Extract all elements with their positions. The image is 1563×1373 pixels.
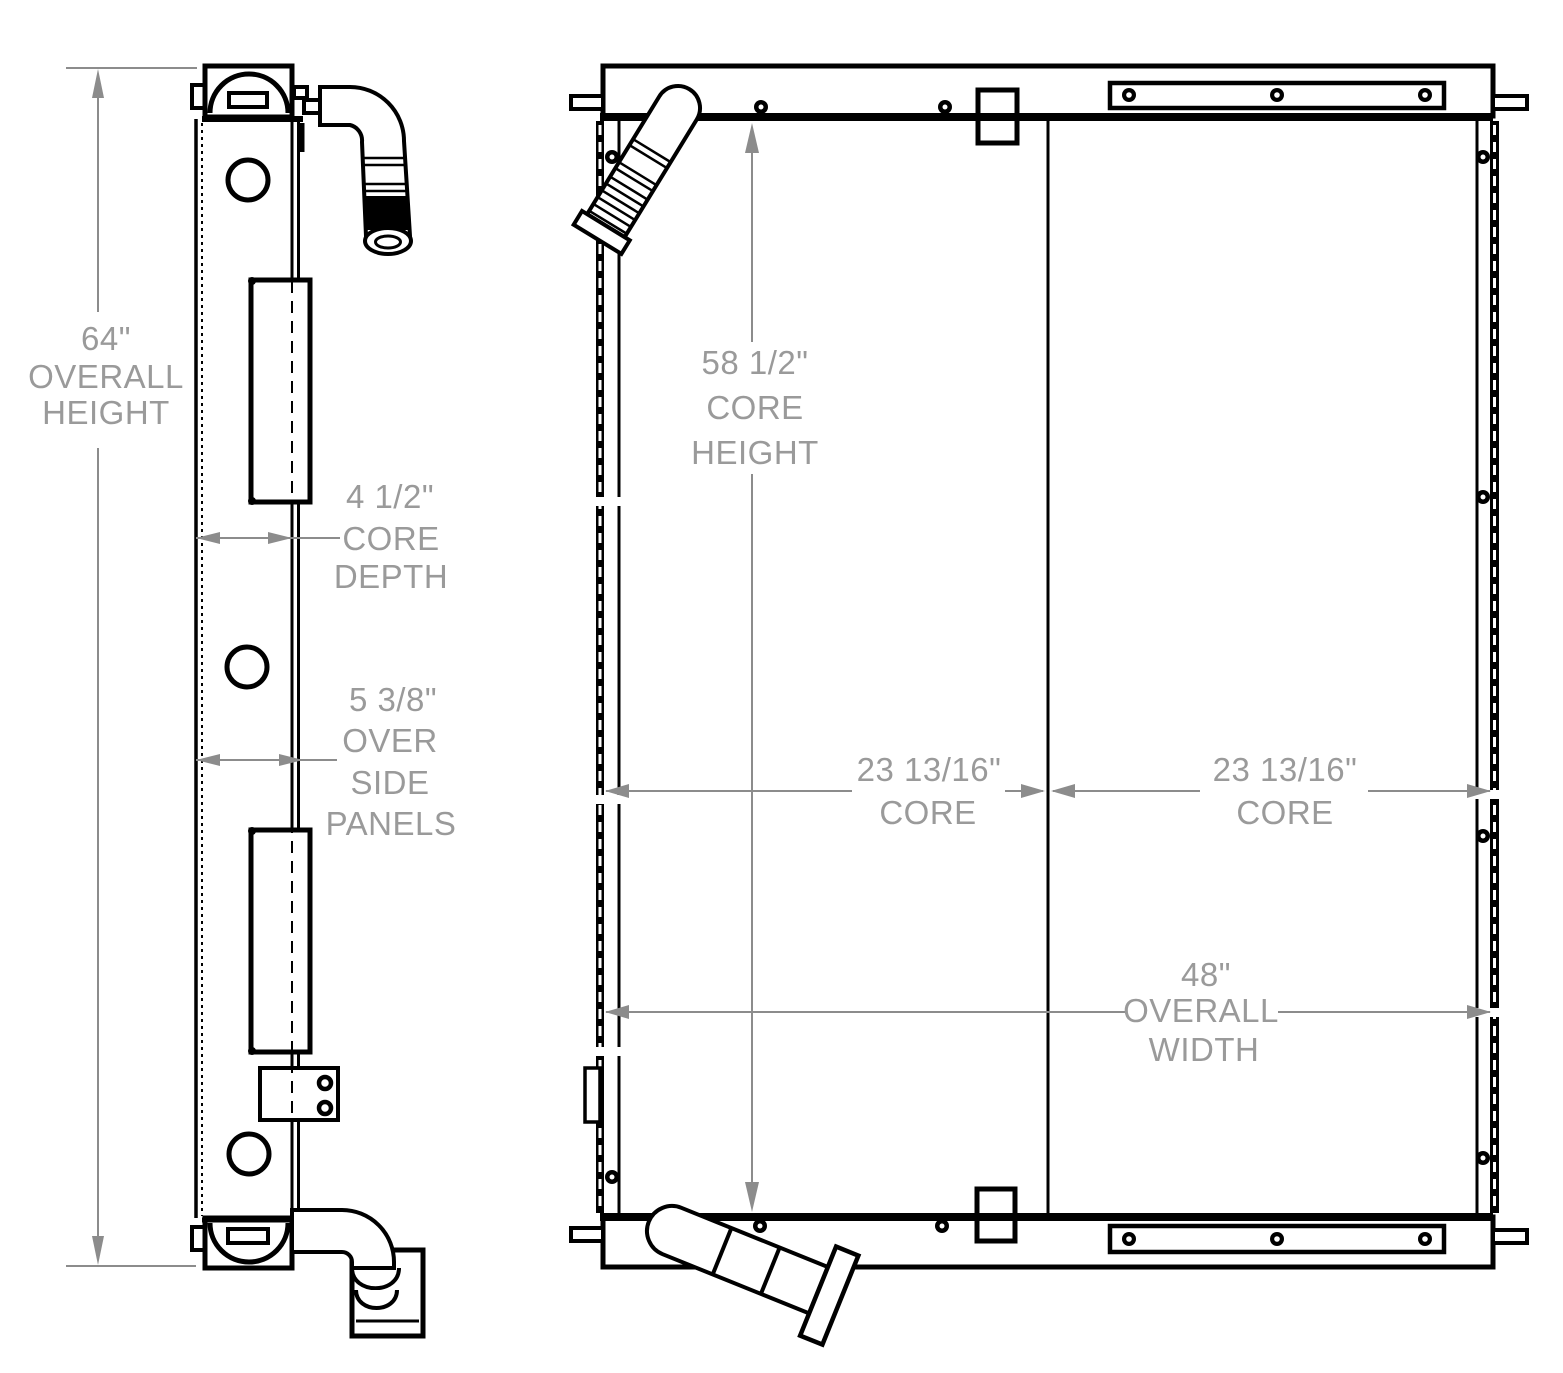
front-bottom-tank-left-tab	[571, 1228, 603, 1241]
arrow-down	[92, 1236, 104, 1265]
dim-core-width-left-line-1: 23 13/16"	[857, 751, 1002, 788]
arrow-down	[745, 1182, 759, 1212]
dim-core-height-line-2: CORE	[706, 389, 803, 426]
arrow-right	[1021, 784, 1045, 798]
side-bottom-tank-slot	[228, 1229, 268, 1243]
front-top-tank-right-tab	[1493, 96, 1527, 109]
dim-core-height-line-3: HEIGHT	[691, 434, 819, 471]
dim-core-depth: 4 1/2" CORE DEPTH	[196, 478, 448, 595]
side-mounting-bracket	[260, 1068, 338, 1120]
front-core	[585, 121, 1501, 1213]
dim-core-depth-line-3: DEPTH	[334, 558, 448, 595]
side-bottom-hose-ridge	[352, 1268, 399, 1288]
side-panel-lower	[251, 830, 310, 1052]
dim-core-width-right-line-2: CORE	[1236, 794, 1333, 831]
side-bottom-hose	[292, 1210, 423, 1336]
dim-over-side-panels-line-2: OVER	[342, 722, 438, 759]
side-top-tank	[192, 66, 303, 119]
dim-core-width-left: 23 13/16" CORE	[605, 751, 1045, 831]
arrow-right	[268, 532, 292, 544]
dim-core-height: 58 1/2" CORE HEIGHT	[691, 123, 819, 1212]
dim-core-depth-line-2: CORE	[342, 520, 439, 557]
dim-overall-height-line-1: 64"	[81, 320, 131, 357]
dim-overall-width-line-2: OVERALL	[1123, 992, 1279, 1029]
dim-overall-width-line-1: 48"	[1181, 956, 1231, 993]
side-panel-upper	[251, 280, 310, 502]
arrow-up	[92, 69, 104, 98]
dim-core-depth-line-1: 4 1/2"	[346, 478, 434, 515]
side-top-tank-slot	[229, 93, 267, 107]
dim-core-width-right-line-1: 23 13/16"	[1213, 751, 1358, 788]
dim-core-width-right: 23 13/16" CORE	[1051, 751, 1491, 831]
arrow-left	[196, 532, 220, 544]
side-bottom-tank	[192, 1218, 303, 1268]
dim-over-side-panels-line-3: SIDE	[350, 764, 429, 801]
front-left-edge-clip	[585, 1068, 600, 1122]
dim-core-height-line-1: 58 1/2"	[702, 344, 809, 381]
dim-over-side-panels-line-1: 5 3/8"	[349, 681, 437, 718]
side-view: 64" OVERALL HEIGHT 4 1/2" CORE DEPTH 5 3…	[28, 66, 456, 1336]
side-top-hose-clamps	[294, 87, 320, 113]
dim-over-side-panels-line-4: PANELS	[326, 805, 457, 842]
side-top-hose	[320, 87, 411, 254]
dim-overall-height-line-3: HEIGHT	[42, 394, 170, 431]
dim-core-width-left-line-2: CORE	[879, 794, 976, 831]
arrow-left	[196, 754, 220, 766]
front-top-tank-left-tab	[571, 96, 603, 109]
dim-overall-height-line-2: OVERALL	[28, 358, 184, 395]
radiator-technical-drawing: 64" OVERALL HEIGHT 4 1/2" CORE DEPTH 5 3…	[0, 0, 1563, 1373]
drawing-page: 64" OVERALL HEIGHT 4 1/2" CORE DEPTH 5 3…	[0, 0, 1563, 1373]
arrow-left	[1051, 784, 1075, 798]
arrow-up	[745, 123, 759, 153]
arrow-left	[605, 1005, 629, 1019]
side-top-hose-dark-band	[364, 196, 410, 230]
dim-over-side-panels: 5 3/8" OVER SIDE PANELS	[196, 681, 456, 842]
front-view: 58 1/2" CORE HEIGHT 23 13/16" CORE 23 13…	[571, 66, 1527, 1345]
dim-overall-width-line-3: WIDTH	[1149, 1031, 1260, 1068]
front-bottom-tank-right-tab	[1493, 1230, 1527, 1243]
side-bottom-hose-ridge	[356, 1290, 397, 1308]
dim-overall-height: 64" OVERALL HEIGHT	[28, 68, 197, 1266]
